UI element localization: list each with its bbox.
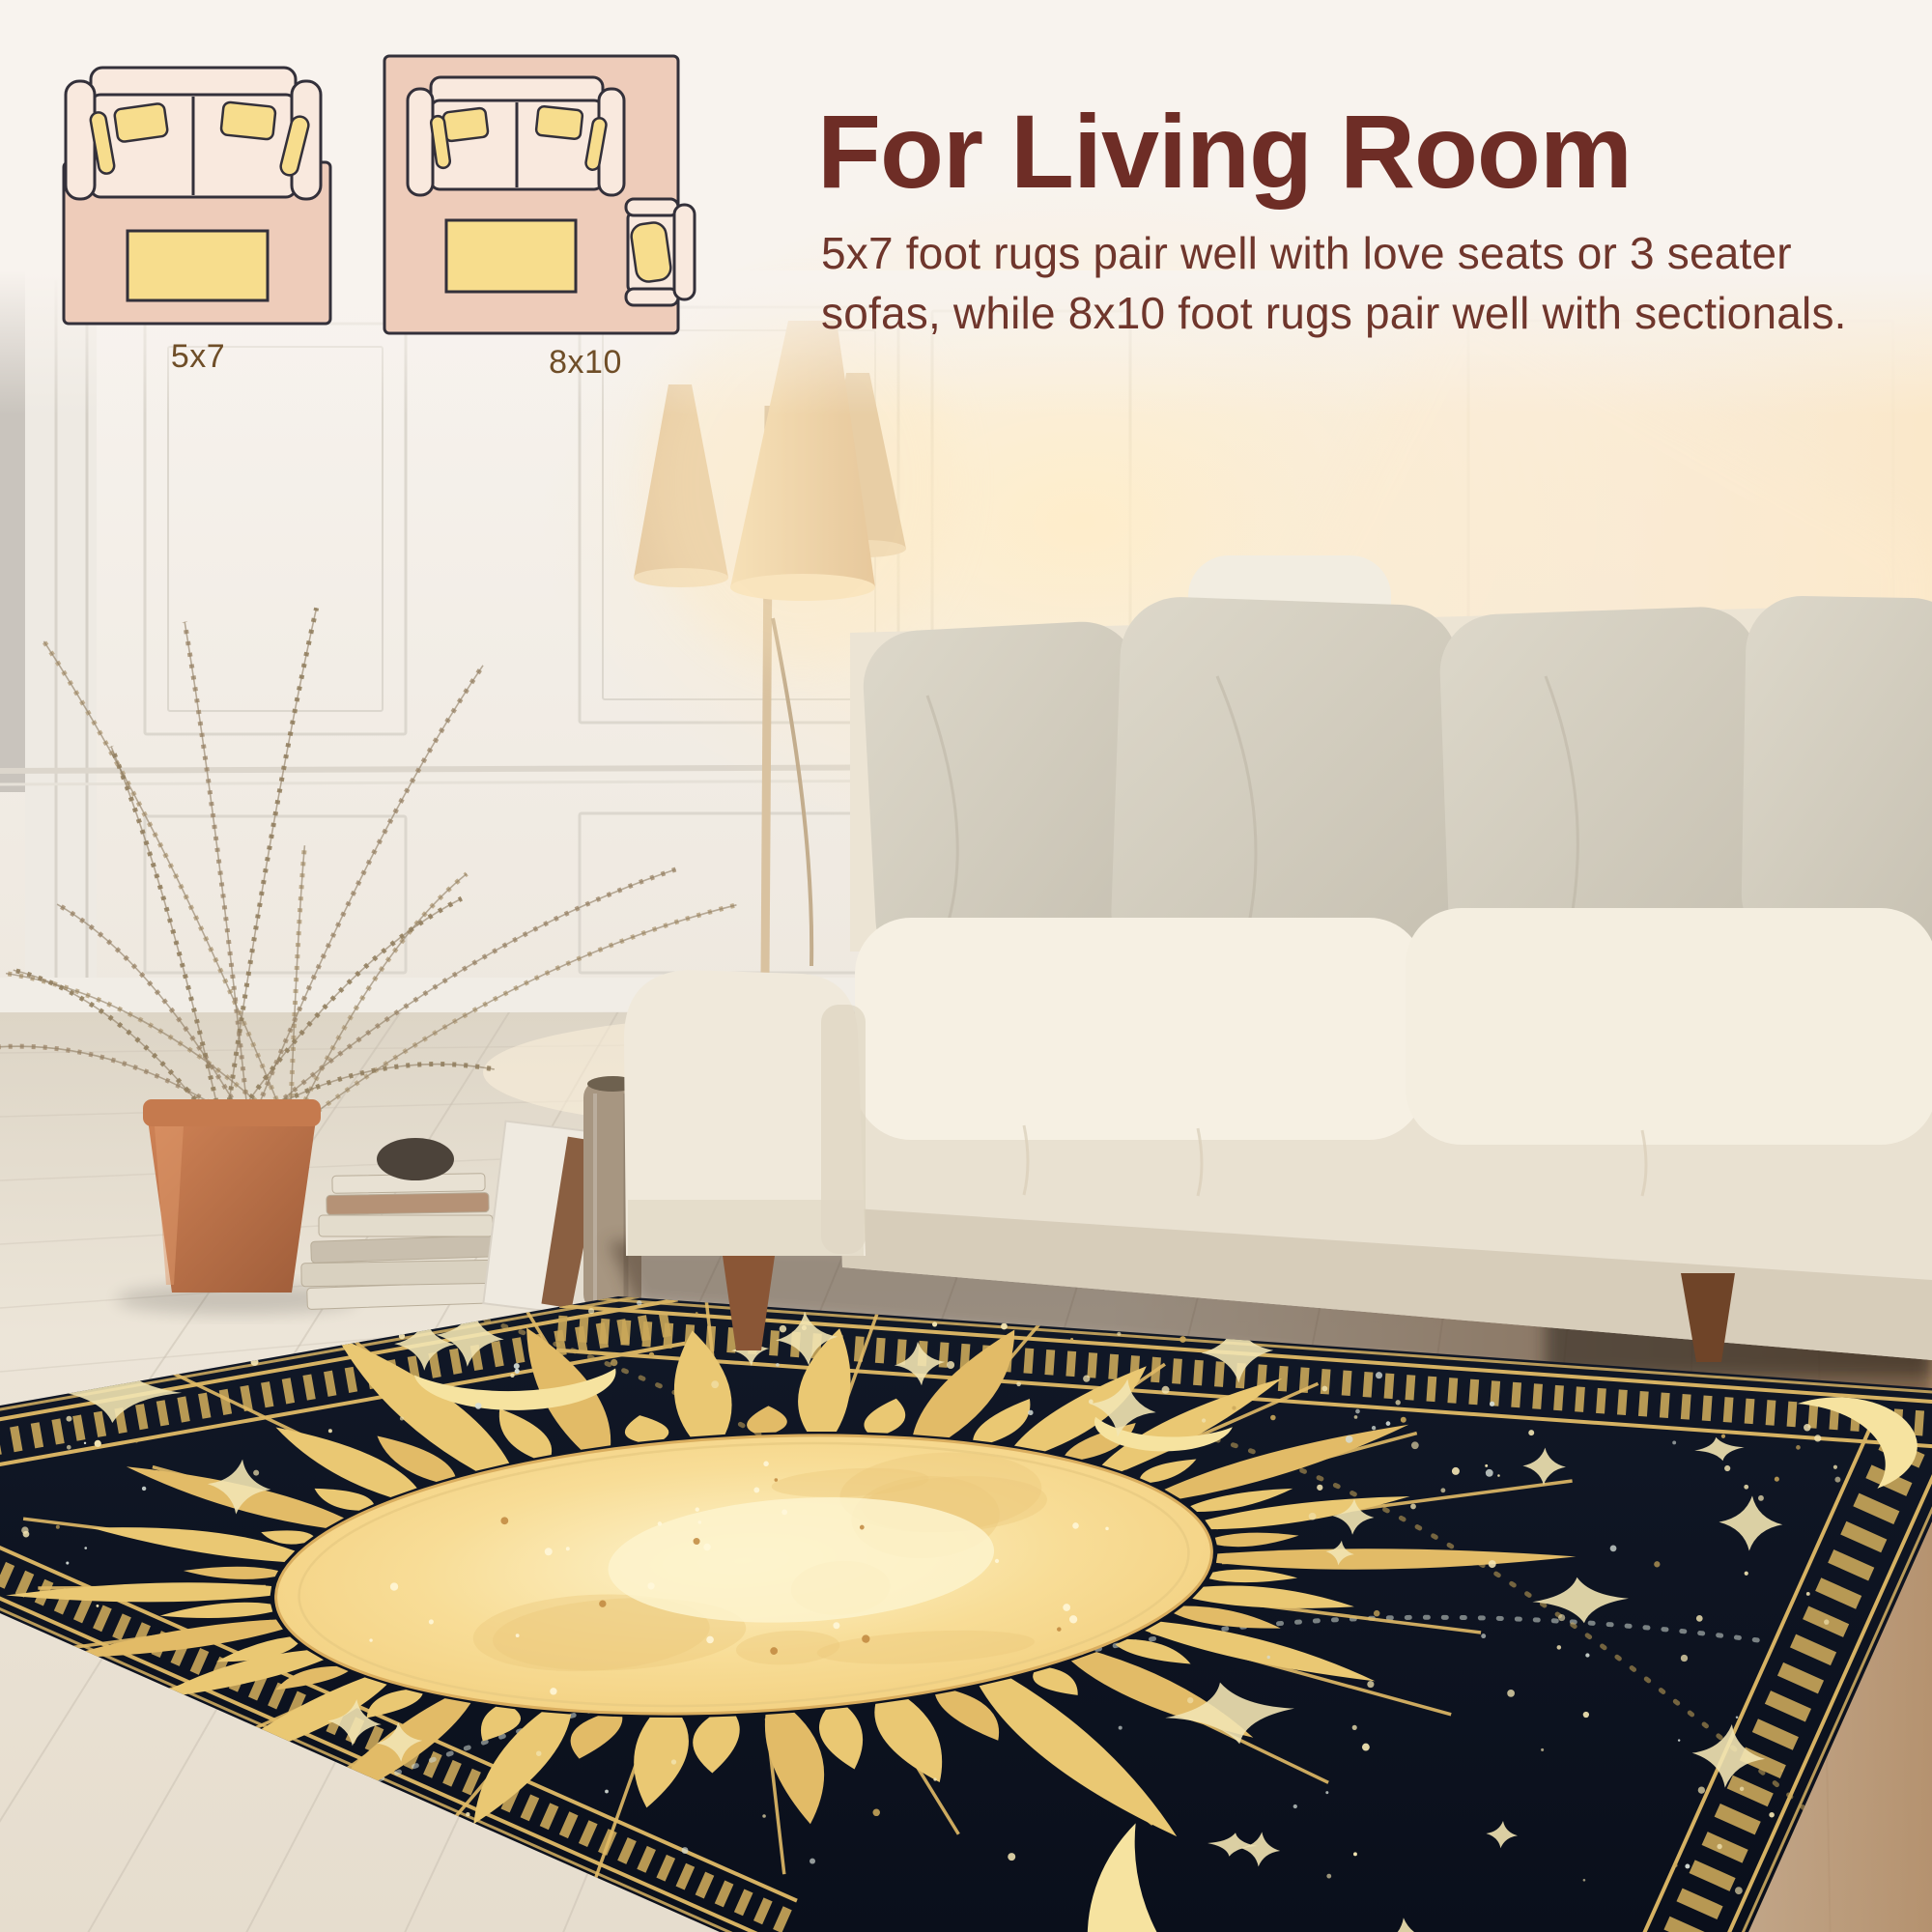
rug-star bbox=[1028, 1410, 1033, 1415]
rug-star bbox=[515, 1369, 520, 1374]
rug-star bbox=[1744, 1485, 1748, 1490]
armchair-arm bbox=[626, 289, 678, 305]
rug-star bbox=[1678, 1739, 1680, 1741]
rug-star bbox=[1309, 1513, 1317, 1520]
page-description: 5x7 foot rugs pair well with love seats … bbox=[821, 224, 1918, 343]
sofa-arm bbox=[66, 81, 95, 199]
rug-star bbox=[696, 1312, 698, 1315]
book bbox=[327, 1193, 489, 1215]
rug-star bbox=[1321, 1386, 1327, 1392]
rug-star bbox=[1672, 1440, 1676, 1444]
rug-star bbox=[1736, 1717, 1739, 1719]
rug-star bbox=[1452, 1467, 1460, 1475]
rug-star bbox=[1352, 1725, 1357, 1730]
rug-star bbox=[646, 1327, 648, 1329]
rug-star bbox=[1740, 1787, 1744, 1791]
rug-size-diagrams bbox=[0, 0, 734, 386]
rug-star bbox=[1583, 1879, 1586, 1882]
rug-star bbox=[1354, 1415, 1358, 1419]
rug-star bbox=[1698, 1786, 1705, 1793]
rug-star bbox=[1386, 1421, 1391, 1426]
rug-star bbox=[1489, 1560, 1496, 1568]
diagram-label-8x10: 8x10 bbox=[549, 344, 622, 382]
sofa-arm-base-shade bbox=[628, 1200, 864, 1256]
rug-star bbox=[1486, 1469, 1493, 1477]
rug-star bbox=[142, 1487, 146, 1491]
rug-star bbox=[1016, 1382, 1021, 1387]
rug-star bbox=[810, 1859, 815, 1864]
rug-star bbox=[1583, 1712, 1589, 1718]
rug-star bbox=[776, 1363, 780, 1367]
rug-star bbox=[1528, 1430, 1534, 1435]
seat-cushion bbox=[1406, 908, 1932, 1145]
rug-star bbox=[1355, 1409, 1360, 1414]
rug-star bbox=[97, 1605, 99, 1607]
rug-star bbox=[1780, 1770, 1783, 1773]
book bbox=[319, 1215, 493, 1236]
rug-star bbox=[1814, 1435, 1821, 1441]
rug-star bbox=[1367, 1681, 1374, 1688]
sofa-arm bbox=[408, 89, 433, 195]
rug-star bbox=[1685, 1863, 1690, 1868]
rug-star bbox=[1497, 1474, 1500, 1477]
rug-star bbox=[1083, 1376, 1090, 1382]
rug-star bbox=[1485, 1464, 1488, 1467]
page-title: For Living Room bbox=[817, 97, 1932, 206]
rug-star bbox=[1481, 1634, 1486, 1638]
rug-star bbox=[1654, 1561, 1660, 1567]
rug-star bbox=[1696, 1615, 1703, 1622]
rug-star bbox=[1411, 1441, 1419, 1449]
rug-star bbox=[1372, 1426, 1376, 1430]
rug-star bbox=[510, 1374, 514, 1378]
rug-star bbox=[1440, 1488, 1445, 1492]
rug-star bbox=[1317, 1485, 1322, 1491]
rug-star bbox=[95, 1440, 101, 1447]
rug-star bbox=[1008, 1853, 1015, 1861]
rug-star bbox=[1346, 1435, 1353, 1443]
rug-star bbox=[671, 1759, 676, 1764]
rug-star bbox=[1293, 1804, 1297, 1808]
rug-star bbox=[1769, 1812, 1775, 1818]
rug-star bbox=[23, 1531, 30, 1538]
rug-star bbox=[1119, 1726, 1122, 1730]
rug-star bbox=[1745, 1572, 1748, 1576]
decor-object bbox=[377, 1138, 454, 1180]
rug-star bbox=[1187, 1697, 1193, 1703]
rug-star bbox=[1232, 1406, 1236, 1410]
rug-star bbox=[1585, 1653, 1589, 1657]
rug-star bbox=[1326, 1874, 1331, 1879]
rug-star bbox=[1162, 1386, 1170, 1394]
coffee-table bbox=[446, 220, 576, 292]
rug-star bbox=[872, 1809, 880, 1817]
rug-star bbox=[637, 1300, 641, 1305]
rug-star bbox=[605, 1790, 609, 1794]
rug-star bbox=[1796, 1445, 1801, 1450]
rug-star bbox=[1325, 1791, 1328, 1794]
throw-pillow bbox=[114, 103, 168, 143]
rug-star bbox=[514, 1363, 520, 1369]
rug-star bbox=[1490, 1402, 1494, 1406]
rug-star bbox=[762, 1814, 766, 1818]
rug-star bbox=[1758, 1495, 1764, 1501]
rug-star bbox=[1824, 1619, 1829, 1624]
seat-cushion bbox=[855, 918, 1425, 1140]
rug-star bbox=[711, 1380, 719, 1388]
rug-star bbox=[1804, 1424, 1810, 1431]
rug-star bbox=[1070, 1338, 1073, 1341]
product-marketing-image: For Living Room 5x7 foot rugs pair well … bbox=[0, 0, 1932, 1932]
rug-star bbox=[1806, 1592, 1810, 1596]
rug-star bbox=[1681, 1655, 1688, 1662]
rug-star bbox=[66, 1561, 69, 1564]
armchair-back bbox=[674, 205, 695, 299]
rug-star bbox=[466, 1812, 469, 1816]
rug-star bbox=[328, 1429, 332, 1433]
rug-star bbox=[56, 1525, 60, 1529]
rug-star bbox=[932, 1321, 937, 1326]
armchair-top-view bbox=[626, 199, 695, 305]
rug-star bbox=[780, 1325, 786, 1332]
rug-star bbox=[1724, 1465, 1730, 1471]
rug-star bbox=[1775, 1477, 1779, 1482]
rug-star bbox=[1558, 1614, 1565, 1621]
rug-star bbox=[1202, 1418, 1206, 1422]
rug-star bbox=[536, 1750, 542, 1756]
rug-star bbox=[67, 1445, 71, 1450]
rug-star bbox=[649, 1352, 654, 1357]
rug-star bbox=[1833, 1465, 1837, 1469]
rug-star bbox=[682, 1847, 689, 1854]
throw-pillow bbox=[536, 106, 583, 140]
rug-star bbox=[1353, 1852, 1357, 1856]
rug-star bbox=[400, 1417, 404, 1421]
rug-star bbox=[1541, 1748, 1544, 1751]
rug-star bbox=[1735, 1887, 1743, 1894]
rug-star bbox=[1557, 1645, 1562, 1650]
rug-star bbox=[1267, 1656, 1270, 1659]
rug-star bbox=[1270, 1415, 1276, 1421]
rug-star bbox=[1401, 1417, 1406, 1423]
rug-star bbox=[933, 1777, 936, 1780]
size-diagram-8x10 bbox=[384, 56, 695, 333]
rug-star bbox=[66, 1416, 71, 1422]
pot-rim bbox=[143, 1099, 321, 1126]
rug-star bbox=[135, 1440, 138, 1443]
coffee-table bbox=[128, 231, 268, 300]
rug-star bbox=[84, 1442, 86, 1444]
rug-star bbox=[1610, 1546, 1617, 1552]
throw-pillow bbox=[220, 101, 275, 139]
rug-star bbox=[1179, 1336, 1186, 1343]
armchair-cushion bbox=[630, 221, 672, 283]
rug-star bbox=[1721, 1435, 1725, 1438]
size-diagram-5x7 bbox=[64, 68, 330, 324]
rug-star bbox=[1410, 1504, 1416, 1510]
armchair-arm bbox=[626, 199, 678, 215]
rug-star bbox=[588, 1308, 594, 1314]
diagram-label-5x7: 5x7 bbox=[171, 338, 225, 376]
rug-star bbox=[1376, 1372, 1382, 1378]
rug-star bbox=[947, 1361, 954, 1369]
rug-star bbox=[1117, 1332, 1121, 1336]
rug-star bbox=[475, 1403, 482, 1409]
rug-star bbox=[1674, 1863, 1678, 1867]
rug-star bbox=[1001, 1323, 1008, 1330]
rug-star bbox=[611, 1359, 617, 1366]
rug-star bbox=[1717, 1844, 1721, 1849]
rug-star bbox=[1362, 1744, 1370, 1751]
rug-star bbox=[253, 1470, 259, 1476]
throw-pillow bbox=[442, 107, 488, 141]
book bbox=[301, 1260, 500, 1287]
rug-star bbox=[1395, 1400, 1400, 1405]
rug-star bbox=[1834, 1477, 1840, 1483]
pillow bbox=[1741, 595, 1932, 953]
rug-star bbox=[1374, 1610, 1380, 1617]
rug-star bbox=[1507, 1690, 1515, 1697]
rug-star bbox=[84, 1547, 87, 1549]
